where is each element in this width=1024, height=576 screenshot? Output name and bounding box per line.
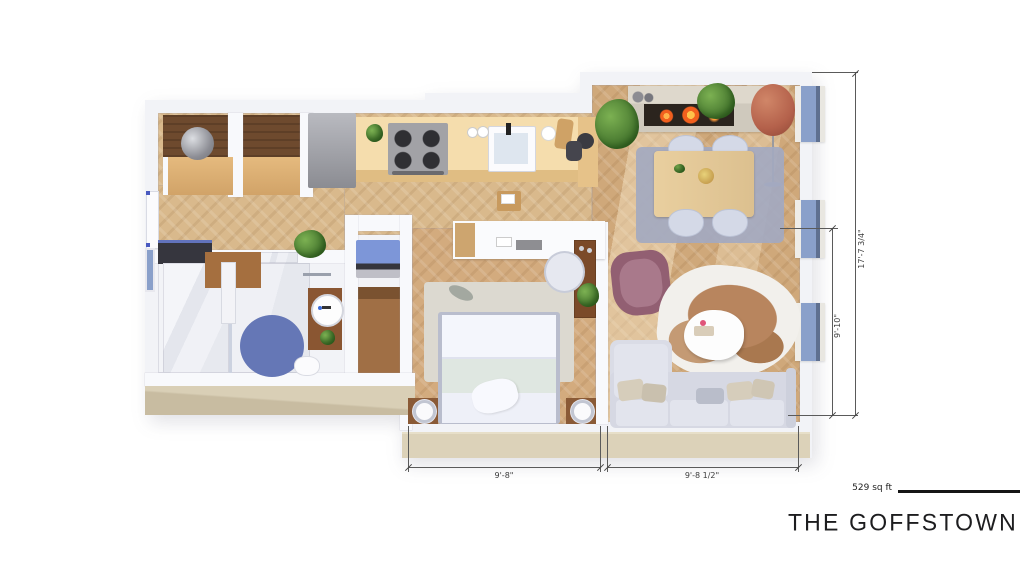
sink-basin xyxy=(494,133,528,164)
towel-bar xyxy=(303,273,331,276)
toilet xyxy=(295,357,319,375)
stove-knobs xyxy=(392,171,444,175)
closet-2-dresser xyxy=(243,157,305,195)
pillow-2 xyxy=(641,383,667,403)
ext-line-top-right xyxy=(812,72,858,73)
gas-stove xyxy=(388,123,448,175)
window-2 xyxy=(795,200,825,258)
desk-item-1 xyxy=(579,246,584,251)
dim-bedroom-width-label: 9'-8" xyxy=(470,471,538,481)
bathroom-window xyxy=(145,248,155,292)
lamp-right xyxy=(571,400,594,423)
palm-plant xyxy=(595,99,639,149)
coffee-table-tray xyxy=(694,326,714,336)
pillow-5 xyxy=(751,378,776,400)
ext-line-bottom-right xyxy=(788,415,858,416)
floorplan-render: 17'-7 3/4" 9'-10" 9'-8" 9'-8 1/2" 529 sq… xyxy=(0,0,1024,576)
sofa-cushion-1 xyxy=(616,400,668,426)
canister-1 xyxy=(468,128,477,137)
area-rule xyxy=(898,490,1020,493)
window-1 xyxy=(795,86,825,142)
fireplace-plant xyxy=(697,83,735,119)
bath-faucet-accent xyxy=(318,306,322,310)
refrigerator xyxy=(308,113,356,188)
pillow-4 xyxy=(726,381,754,402)
coffee-maker xyxy=(566,141,582,161)
plate xyxy=(542,127,555,140)
desk-item-2 xyxy=(587,248,592,253)
dim-living-width-label: 9'-8 1/2" xyxy=(664,471,740,481)
vanity-plant xyxy=(320,330,335,345)
hall-plant xyxy=(294,230,326,258)
butterfly-chair-seat xyxy=(618,257,665,309)
dim-living-height-label: 9'-10" xyxy=(833,291,843,361)
wardrobe-closet-floor xyxy=(352,287,400,373)
table-sprig xyxy=(674,164,685,173)
bathroom-doorway xyxy=(260,252,298,263)
dining-chair-3 xyxy=(668,209,704,237)
dim-total-height-line xyxy=(855,73,856,415)
coffee-table-flowers xyxy=(700,320,706,326)
tv-panel xyxy=(516,240,542,250)
console-remote xyxy=(497,238,511,246)
fruit-bowl xyxy=(698,168,714,184)
dim-total-height-label: 17'-7 3/4" xyxy=(857,214,867,284)
bottom-terrace xyxy=(402,432,810,458)
area-label: 529 sq ft xyxy=(840,483,892,493)
wardrobe-shelf xyxy=(352,287,400,299)
dining-table xyxy=(654,151,754,217)
closet-2-floor xyxy=(243,115,300,157)
door-hinge-top xyxy=(146,191,150,195)
console-cabinet xyxy=(455,223,475,257)
bath-sink xyxy=(311,294,344,327)
floor-lamp-shade xyxy=(751,84,795,136)
mantel-vases xyxy=(632,90,656,104)
stool-paper xyxy=(502,195,514,203)
sofa-cushion-3 xyxy=(730,400,784,426)
faucet-icon xyxy=(506,123,511,135)
bath-cabinet-front xyxy=(221,262,236,324)
dim-living-width-line xyxy=(607,467,799,468)
door-hinge-bottom xyxy=(146,243,150,247)
left-terrace-wedge xyxy=(145,386,415,415)
counter-plant xyxy=(366,124,383,142)
sofa-armrest xyxy=(786,368,796,428)
washer-dryer xyxy=(356,240,400,278)
lamp-left xyxy=(413,400,436,423)
dining-chair-4 xyxy=(712,209,748,237)
closet-1-dresser xyxy=(163,157,233,195)
bed-blanket-top xyxy=(442,315,556,359)
entry-bench xyxy=(158,240,212,264)
bath-faucet-icon xyxy=(322,306,331,309)
coffee-table xyxy=(684,310,744,360)
dim-bedroom-width-line xyxy=(408,467,601,468)
plan-title: THE GOFFSTOWN xyxy=(770,508,1018,536)
ext-line-mid-right xyxy=(780,228,838,229)
desk-plant xyxy=(577,283,599,307)
water-heater xyxy=(181,127,214,160)
canister-2 xyxy=(478,127,488,137)
pillow-3 xyxy=(696,388,724,404)
